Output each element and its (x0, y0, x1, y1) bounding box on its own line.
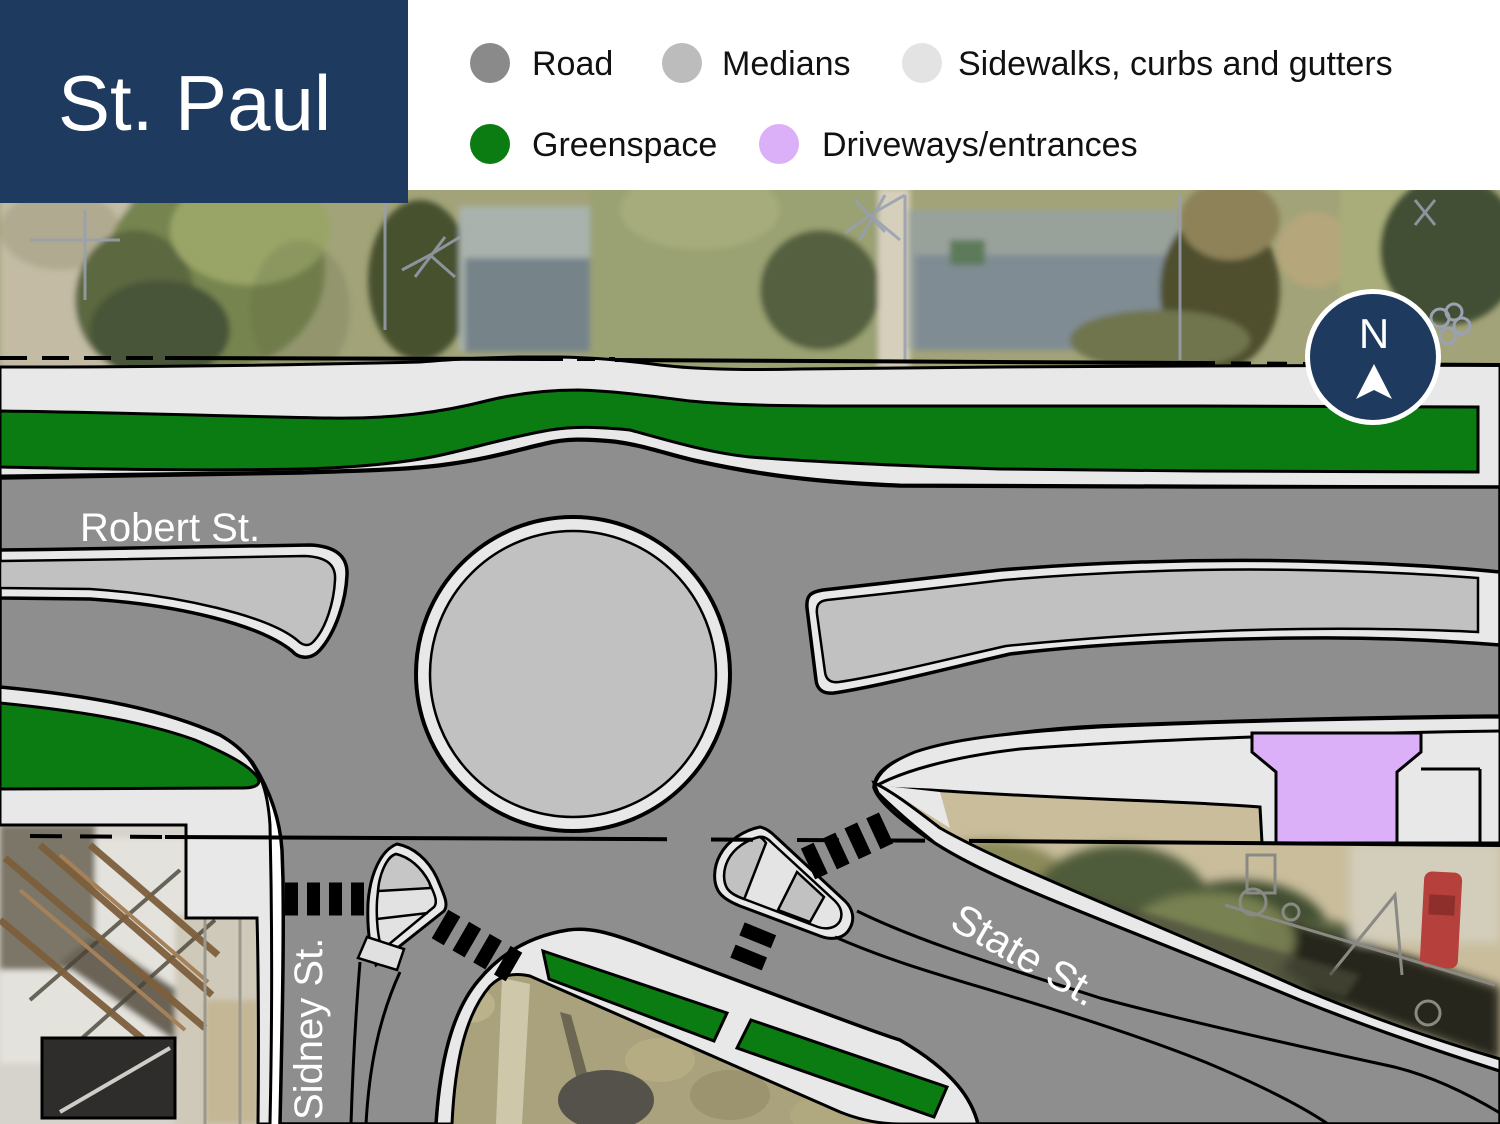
svg-text:Road: Road (532, 45, 613, 83)
svg-text:St. Paul: St. Paul (58, 59, 331, 147)
svg-text:Greenspace: Greenspace (532, 126, 717, 164)
svg-text:Sidney St.: Sidney St. (287, 938, 331, 1120)
svg-text:Sidewalks, curbs and gutters: Sidewalks, curbs and gutters (958, 45, 1393, 83)
svg-text:Robert St.: Robert St. (80, 506, 260, 550)
svg-text:Driveways/entrances: Driveways/entrances (822, 126, 1138, 164)
svg-text:Medians: Medians (722, 45, 851, 83)
svg-text:N: N (1359, 310, 1389, 357)
